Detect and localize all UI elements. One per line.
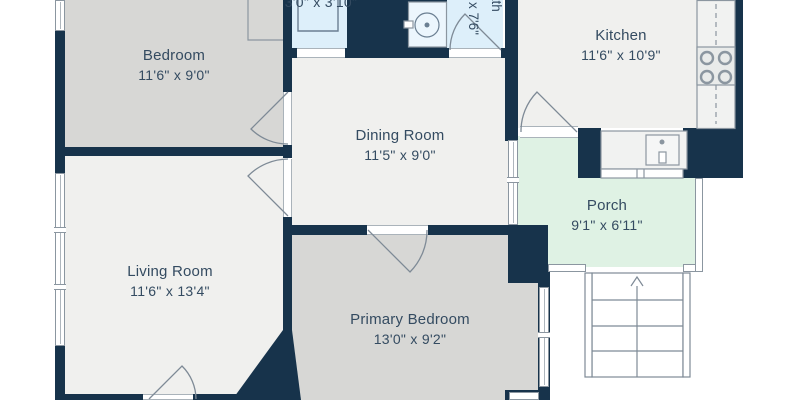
door-opening [449,48,501,58]
label-bath-name: Bath [489,0,504,12]
label-closet-dims: 3'0" x 3'10" [266,0,376,12]
washer-dot-icon [425,23,430,28]
door-opening [297,48,345,58]
room-dims: 11'6" x 9'0" [94,66,254,85]
wall [735,0,743,130]
washer-drum-icon [415,13,439,37]
laundry [404,2,447,47]
wall [408,0,447,3]
window-mullion [507,177,519,183]
room-dims: 3'0" x 3'10" [266,0,376,12]
room-name: Primary Bedroom [310,310,510,330]
window [509,392,539,400]
wall [408,47,447,58]
floor-plan: Bedroom 11'6" x 9'0" Living Room 11'6" x… [0,0,800,400]
room-name: Kitchen [541,26,701,46]
window [55,0,65,31]
label-bedroom: Bedroom 11'6" x 9'0" [94,46,254,85]
door-opening [283,92,292,145]
room-name: Porch [527,196,687,216]
stairs-rail [585,273,592,377]
entry-stairs [585,273,690,377]
wall [505,0,518,141]
window-mullion [54,284,66,290]
room-dims: 11'5" x 9'0" [310,146,490,165]
label-dining-room: Dining Room 11'5" x 9'0" [310,126,490,165]
label-porch: Porch 9'1" x 6'11" [527,196,687,235]
wall [283,145,292,158]
label-bath-dims: x 7'6" [466,2,481,35]
washer-icon [409,2,447,47]
window [55,173,65,346]
room-dims: 9'1" x 6'11" [527,216,687,235]
room-dims: 11'6" x 10'9" [541,46,701,65]
room-name: Dining Room [310,126,490,146]
door-opening [283,159,292,217]
label-primary-bedroom: Primary Bedroom 13'0" x 9'2" [310,310,510,349]
wall [683,128,743,178]
room-dims: 13'0" x 9'2" [310,330,510,349]
porch-wall [548,264,586,272]
entry-arrow-icon [631,277,643,286]
window-mullion [538,332,550,338]
label-living-room: Living Room 11'6" x 13'4" [90,262,250,301]
stairs-rail [683,273,690,377]
porch-wall [695,178,703,272]
wall [578,128,601,178]
window-mullion [54,227,66,233]
door-opening [143,394,193,400]
label-kitchen: Kitchen 11'6" x 10'9" [541,26,701,65]
wall [55,346,65,400]
wall [283,0,292,92]
room-dims: 11'6" x 13'4" [90,282,250,301]
room-name: Living Room [90,262,250,282]
stairs-treads [592,273,683,377]
door-opening [367,225,428,235]
room-name: Bedroom [94,46,254,66]
wall [55,147,292,156]
door-opening [520,126,578,138]
